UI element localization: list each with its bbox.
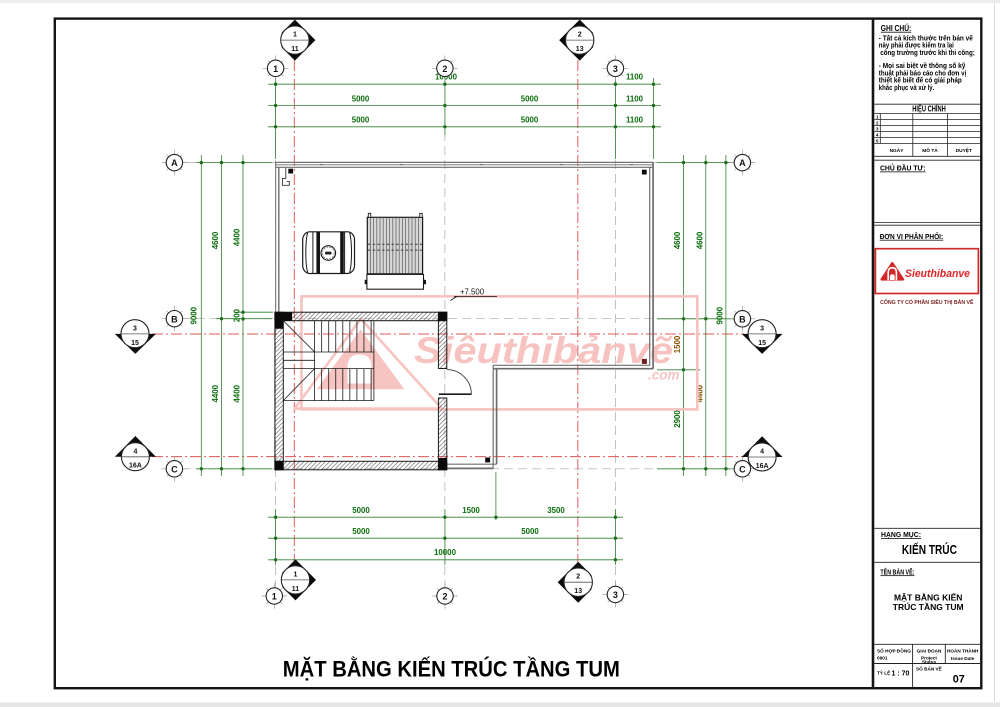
svg-text:1: 1 [294,571,298,578]
svg-text:+7.500: +7.500 [460,287,485,296]
svg-text:3: 3 [760,325,764,332]
svg-text:1: 1 [293,32,297,39]
svg-text:ĐƠN VỊ PHÂN PHỐI:: ĐƠN VỊ PHÂN PHỐI: [880,231,944,241]
svg-text:1: 1 [272,592,277,602]
svg-text:HOÀN THÀNH: HOÀN THÀNH [947,647,979,653]
svg-text:4600: 4600 [673,231,682,249]
svg-text:0901: 0901 [877,655,888,660]
svg-text:NGÀY: NGÀY [890,147,905,154]
svg-text:5000: 5000 [521,527,539,536]
svg-text:2: 2 [442,592,447,602]
svg-text:MẶT BẰNG KIẾN: MẶT BẰNG KIẾN [894,593,962,603]
svg-text:3: 3 [133,325,137,332]
svg-text:- Tất cả kích thước trên bản v: - Tất cả kích thước trên bản vẽ [879,34,973,42]
svg-text:TÊN BẢN VẼ:: TÊN BẢN VẼ: [880,567,914,576]
svg-text:5000: 5000 [352,116,370,125]
svg-text:HẠNG MỤC:: HẠNG MỤC: [881,530,921,539]
svg-text:A: A [739,158,746,168]
svg-text:GHI CHÚ:: GHI CHÚ: [881,24,912,33]
svg-text:B: B [171,314,178,324]
svg-text:B: B [739,314,746,324]
svg-text:13: 13 [576,46,584,53]
svg-text:3: 3 [613,590,618,600]
svg-text:2: 2 [442,64,447,74]
svg-text:9000: 9000 [715,306,724,324]
svg-text:11: 11 [292,586,300,593]
svg-text:Sieuthibanve: Sieuthibanve [905,268,970,280]
svg-text:MẶT BẰNG KIẾN TRÚC TẦNG TUM: MẶT BẰNG KIẾN TRÚC TẦNG TUM [283,656,620,681]
svg-text:4: 4 [133,448,137,455]
svg-text:5000: 5000 [352,94,370,103]
svg-text:1100: 1100 [626,116,644,125]
svg-text:9000: 9000 [190,306,199,324]
svg-text:C: C [739,464,746,474]
svg-text:4600: 4600 [695,231,704,249]
svg-text:4400: 4400 [233,228,242,246]
svg-text:4600: 4600 [211,231,220,249]
svg-text:3500: 3500 [547,506,565,515]
svg-text:1 : 70: 1 : 70 [892,670,910,677]
svg-text:GIAI ĐOẠN: GIAI ĐOẠN [917,648,942,653]
svg-text:CÔNG TY CỔ PHẦN SIÊU THỊ BẢN V: CÔNG TY CỔ PHẦN SIÊU THỊ BẢN VẼ [880,298,974,306]
svg-text:3: 3 [613,64,618,74]
svg-text:TRÚC TẦNG TUM: TRÚC TẦNG TUM [893,601,964,612]
svg-text:1100: 1100 [626,73,644,82]
svg-text:200: 200 [233,308,242,322]
svg-text:5000: 5000 [352,506,370,515]
svg-text:07: 07 [953,673,965,685]
svg-text:HIỆU CHỈNH: HIỆU CHỈNH [912,105,946,114]
svg-text:2: 2 [576,574,580,581]
svg-text:1500: 1500 [673,335,682,353]
svg-text:2: 2 [578,32,582,39]
svg-text:Status: Status [922,659,937,664]
svg-text:11: 11 [291,46,299,53]
svg-text:công trường trước khi thi công: công trường trước khi thi công; [880,50,975,57]
svg-text:thuật phải báo cáo cho đơn vị: thuật phải báo cáo cho đơn vị [879,70,967,77]
svg-text:16A: 16A [756,463,769,470]
svg-text:5000: 5000 [521,116,539,125]
svg-text:Issue Date: Issue Date [951,656,975,661]
svg-text:15: 15 [131,340,139,347]
svg-text:5000: 5000 [352,527,370,536]
svg-text:thiết kế biết để có giải pháp: thiết kế biết để có giải pháp [879,77,962,85]
svg-text:4: 4 [760,449,764,456]
svg-text:2900: 2900 [673,410,682,428]
svg-text:4400: 4400 [233,384,242,402]
svg-text:SỐ BẢN VẼ: SỐ BẢN VẼ [916,666,942,672]
svg-text:5000: 5000 [521,94,539,103]
svg-text:1: 1 [273,64,278,74]
svg-text:16A: 16A [129,463,142,470]
svg-text:khắc phục và xử lý.: khắc phục và xử lý. [879,83,935,92]
svg-text:C: C [171,464,178,474]
svg-text:10000: 10000 [434,548,457,557]
svg-text:1100: 1100 [626,94,644,103]
svg-text:- Mọi sai biệt về thông số kỹ: - Mọi sai biệt về thông số kỹ [879,61,966,70]
svg-text:TỶ LỆ: TỶ LỆ [877,669,890,676]
svg-text:A: A [171,158,178,168]
svg-text:CHỦ ĐẦU TƯ:: CHỦ ĐẦU TƯ: [880,163,926,173]
svg-text:4400: 4400 [211,384,220,402]
svg-text:13: 13 [574,588,582,595]
svg-text:SỐ HỢP ĐỒNG: SỐ HỢP ĐỒNG [877,647,911,653]
svg-text:này phải được kiểm tra lại: này phải được kiểm tra lại [879,42,954,50]
svg-text:15: 15 [758,340,766,347]
svg-text:.com: .com [648,368,680,383]
svg-text:1500: 1500 [462,506,480,515]
svg-text:KIẾN TRÚC: KIẾN TRÚC [902,542,957,557]
